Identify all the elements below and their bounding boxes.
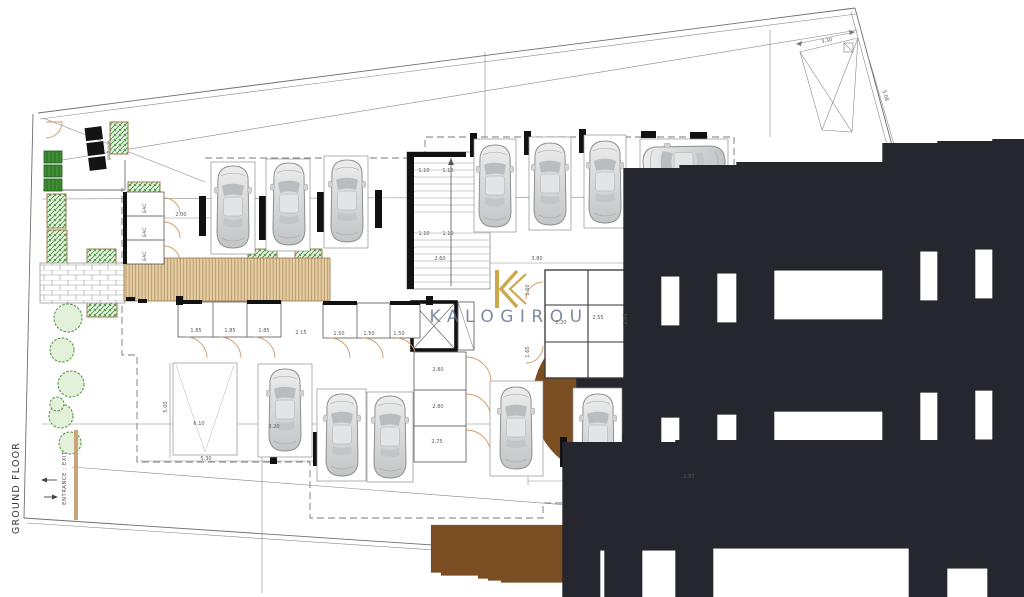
car (266, 369, 304, 451)
dim-label: 2.80 (432, 367, 443, 373)
planter (110, 122, 128, 154)
dim-label: 2.80 (432, 404, 443, 410)
brand-wordmark: KALOGIROU (429, 307, 588, 327)
stall-tags (562, 139, 1024, 597)
car (323, 394, 361, 476)
dim-label: 2.00 (175, 212, 186, 218)
car (531, 143, 569, 225)
eac-rooms: EAC EAC EAC (123, 192, 180, 264)
ground-floor-label: GROUND FLOOR (11, 442, 22, 534)
dim-label: 1.10 (418, 168, 429, 174)
recycle-bin (44, 165, 62, 177)
car (270, 163, 308, 245)
planter (87, 302, 117, 317)
entrance-arrow (41, 478, 58, 500)
driveway-edge (74, 430, 78, 520)
planter (47, 194, 66, 228)
car (586, 141, 624, 223)
dim-label: 2.75 (431, 439, 442, 445)
dim-label: 2.60 (434, 256, 445, 262)
car (328, 160, 366, 242)
dim-label: 5.08 (881, 90, 890, 102)
car (214, 166, 252, 248)
car (497, 387, 535, 469)
dim-label: 1.50 (333, 331, 344, 337)
eac-label: EAC (142, 227, 148, 236)
dim-label: 5.00 (163, 401, 169, 412)
dim-label: 1.65 (525, 346, 531, 357)
dim-label: 1.50 (363, 331, 374, 337)
hedge (49, 304, 84, 454)
dim-label: 1.50 (393, 331, 404, 337)
planter (87, 249, 116, 264)
dim-label: 1.10 (442, 231, 453, 237)
paved-walkway (40, 263, 125, 303)
dim-label: 2.55 (592, 315, 603, 321)
dim-label: 1.10 (442, 168, 453, 174)
recycle-bin (44, 179, 62, 191)
dim-label: 3.80 (531, 256, 542, 262)
logo-k-icon (497, 270, 526, 308)
dim-label: 1.10 (418, 231, 429, 237)
dim-label: 1.85 (224, 328, 235, 334)
eac-label: EAC (142, 251, 148, 260)
garbage-bin (85, 126, 107, 171)
dim-label: 6.10 (193, 421, 204, 427)
dim-label: 1.85 (190, 328, 201, 334)
floor-plan-drawing: garbage EAC (0, 0, 1024, 597)
recycle-bin (44, 151, 62, 163)
dim-label: 2.87 (683, 474, 694, 480)
dim-label: 2.15 (295, 330, 306, 336)
dim-label: 1.85 (258, 328, 269, 334)
entrance-exit-label: ENTRANCE : EXIT (62, 451, 68, 505)
planter (47, 230, 67, 264)
car (476, 145, 514, 227)
dim-label: 3.20 (268, 424, 279, 430)
dim-label: 2.05 (623, 313, 629, 324)
dim-label: 3.30 (821, 37, 833, 45)
dim-label: 1.60 (525, 284, 531, 295)
dim-label: 5.30 (200, 456, 211, 462)
entry-ramp-wedge (800, 38, 858, 132)
eac-label: EAC (142, 203, 148, 212)
empty-stall (173, 363, 237, 455)
car (371, 396, 409, 478)
